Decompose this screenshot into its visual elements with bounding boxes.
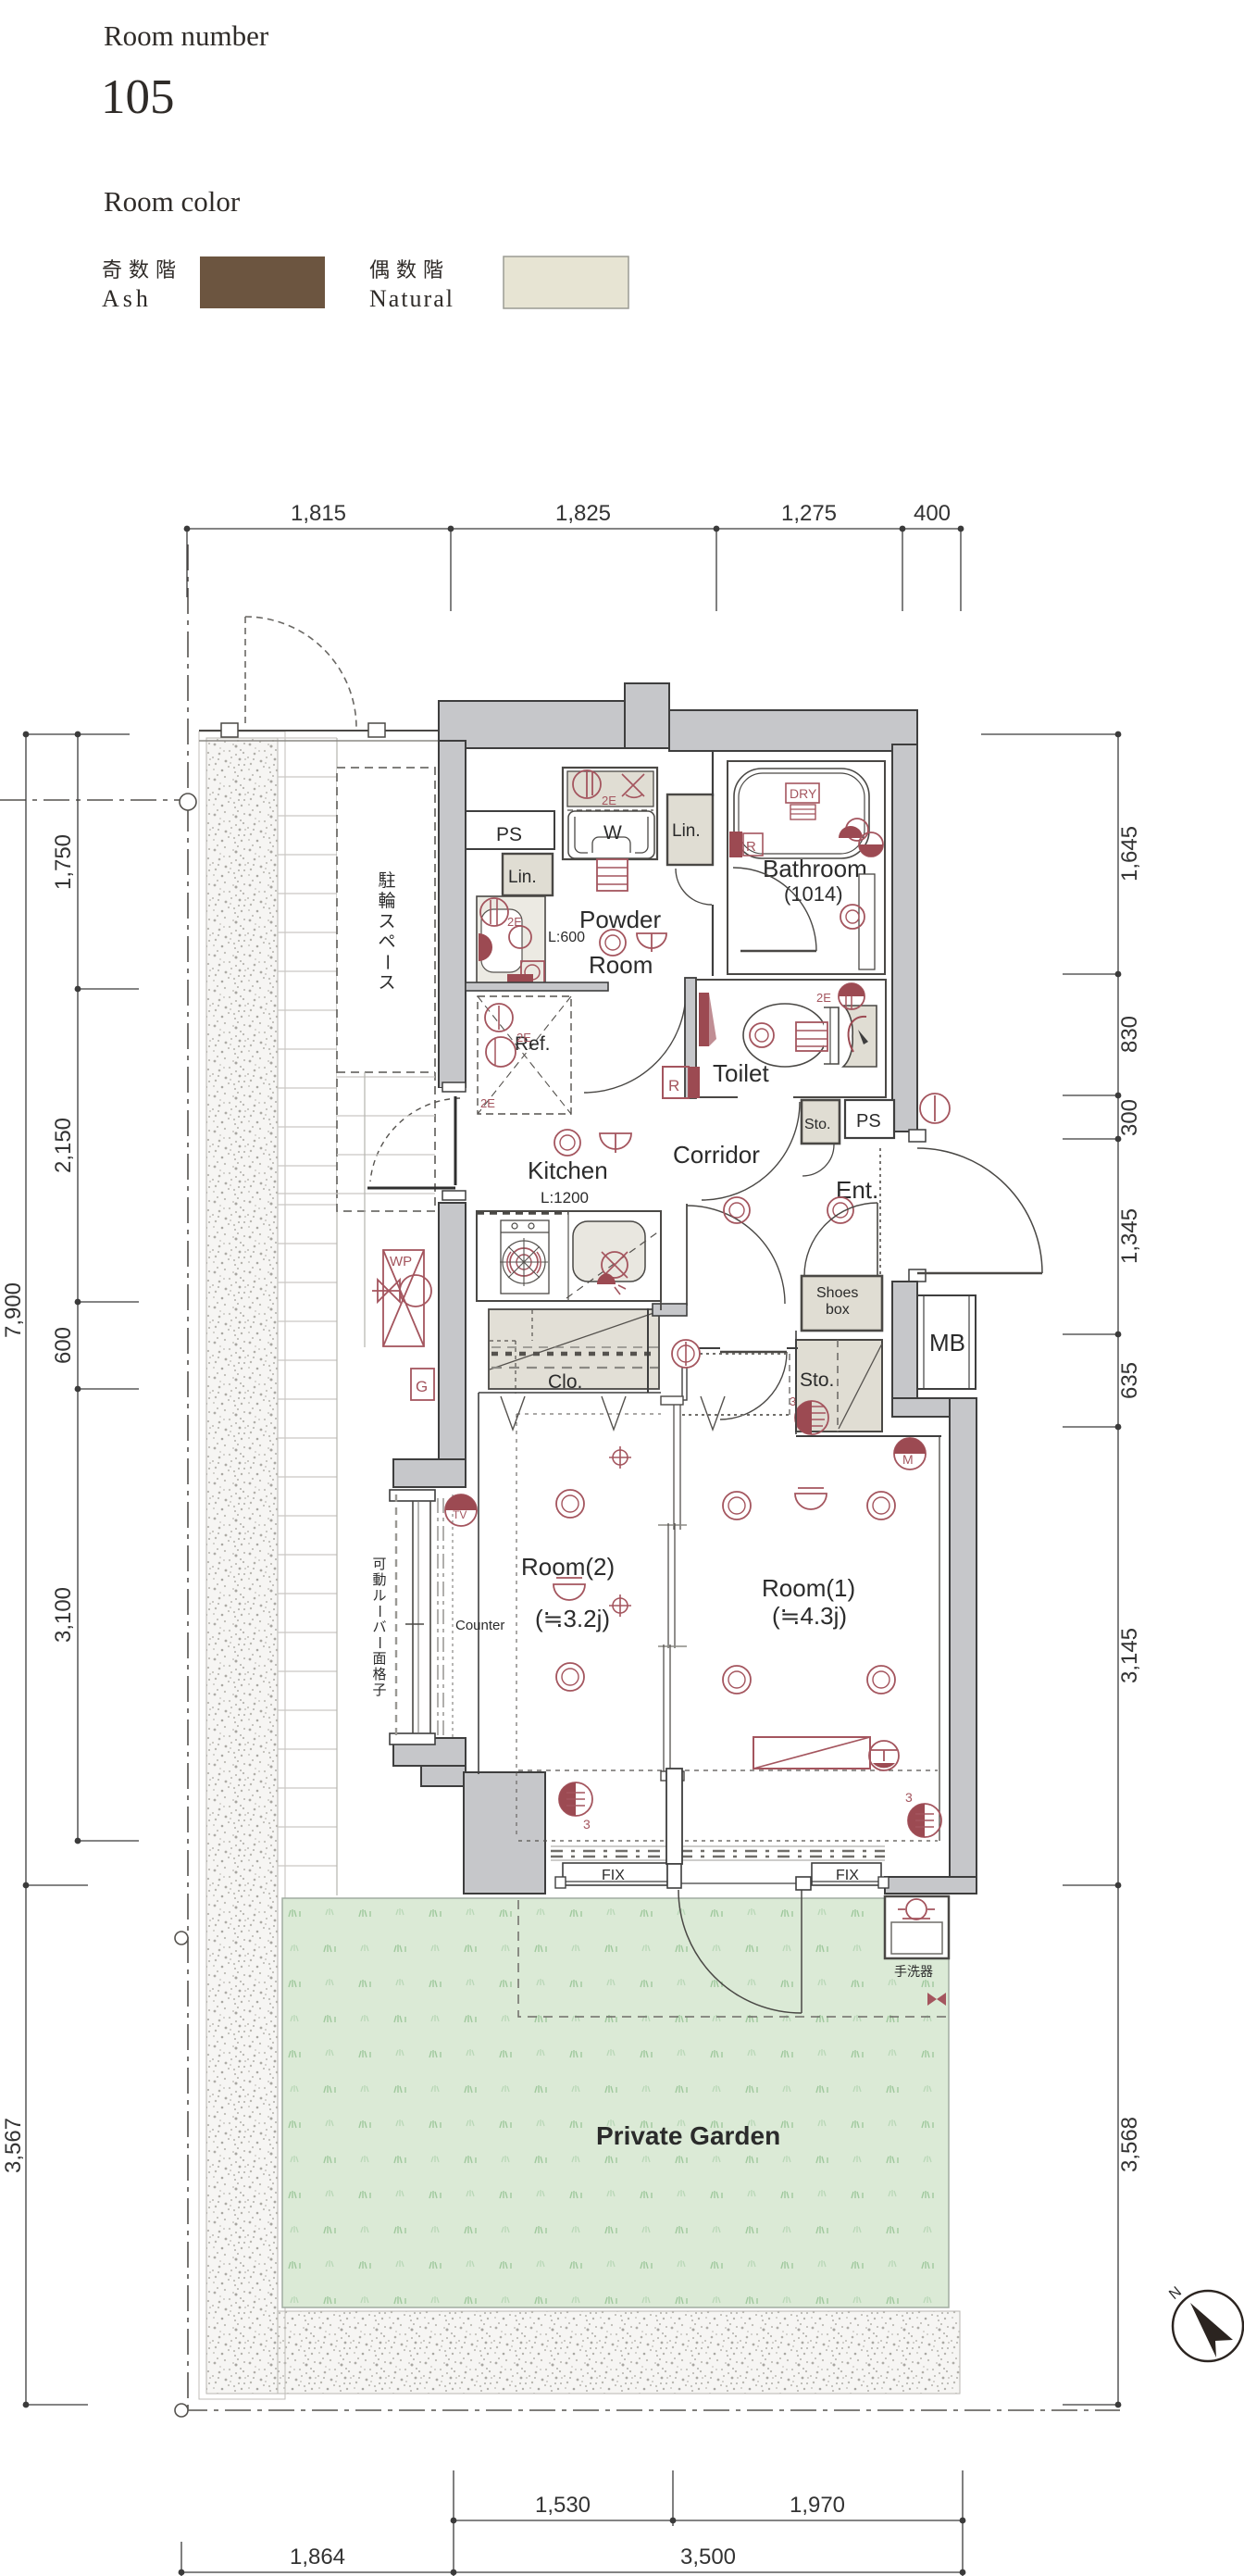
svg-text:子: 子 [372, 1682, 386, 1698]
svg-text:動: 動 [372, 1572, 386, 1588]
svg-text:G: G [416, 1378, 428, 1395]
svg-text:R: R [668, 1077, 679, 1094]
svg-text:面: 面 [372, 1651, 386, 1667]
svg-text:Room(1): Room(1) [762, 1574, 855, 1602]
svg-text:3,100: 3,100 [51, 1587, 76, 1643]
svg-text:Lin.: Lin. [672, 821, 701, 841]
svg-text:Ash: Ash [102, 285, 152, 312]
svg-text:Room color: Room color [104, 185, 241, 218]
svg-text:R: R [746, 839, 756, 855]
svg-text:300: 300 [1117, 1099, 1142, 1136]
svg-text:Powder: Powder [579, 906, 661, 933]
svg-text:ス: ス [378, 973, 395, 993]
svg-text:3,145: 3,145 [1117, 1628, 1142, 1683]
svg-text:W: W [603, 822, 622, 844]
svg-text:ー: ー [371, 1635, 387, 1649]
svg-text:Bathroom: Bathroom [763, 855, 867, 882]
svg-text:2E: 2E [507, 915, 522, 929]
svg-text:box: box [826, 1302, 850, 1318]
svg-text:400: 400 [914, 501, 951, 526]
svg-text:Counter: Counter [455, 1618, 504, 1633]
svg-text:Clo.: Clo. [548, 1371, 582, 1393]
svg-text:Private Garden: Private Garden [596, 2121, 780, 2150]
svg-text:(≒3.2j): (≒3.2j) [535, 1605, 610, 1632]
svg-text:1,970: 1,970 [790, 2493, 845, 2518]
svg-text:Corridor: Corridor [673, 1141, 760, 1169]
svg-text:635: 635 [1117, 1362, 1142, 1399]
svg-text:3: 3 [790, 1394, 796, 1408]
svg-text:ー: ー [371, 1604, 387, 1618]
svg-text:Room(2): Room(2) [521, 1553, 615, 1581]
svg-text:105: 105 [101, 70, 175, 124]
svg-text:2E: 2E [516, 1031, 531, 1044]
svg-text:駐: 駐 [378, 870, 395, 891]
svg-text:3: 3 [583, 1817, 591, 1832]
svg-text:2E: 2E [480, 1096, 495, 1110]
svg-text:Natural: Natural [369, 285, 454, 312]
svg-text:1,530: 1,530 [535, 2493, 591, 2518]
svg-text:可: 可 [372, 1557, 386, 1572]
svg-text:Room number: Room number [104, 19, 269, 52]
svg-text:DRY: DRY [790, 786, 817, 801]
svg-text:(1014): (1014) [784, 882, 843, 906]
svg-text:Toilet: Toilet [713, 1059, 769, 1087]
svg-text:Ent.: Ent. [836, 1176, 878, 1204]
svg-text:3,567: 3,567 [1, 2118, 26, 2173]
svg-text:600: 600 [51, 1327, 76, 1364]
svg-text:1,864: 1,864 [290, 2545, 345, 2570]
svg-text:PS: PS [496, 824, 522, 845]
svg-text:3: 3 [905, 1790, 913, 1805]
svg-text:1,750: 1,750 [51, 834, 76, 890]
svg-text:ペ: ペ [378, 932, 395, 952]
svg-text:奇数階: 奇数階 [102, 258, 182, 281]
svg-text:MB: MB [929, 1329, 965, 1357]
svg-text:バ: バ [372, 1619, 386, 1635]
svg-text:3,500: 3,500 [680, 2545, 736, 2570]
svg-text:2E: 2E [816, 991, 831, 1005]
svg-text:L:1200: L:1200 [541, 1189, 589, 1207]
svg-text:Kitchen: Kitchen [528, 1157, 608, 1184]
svg-text:2E: 2E [602, 794, 616, 807]
svg-text:Sto.: Sto. [804, 1117, 830, 1132]
svg-text:Lin.: Lin. [508, 868, 537, 887]
svg-text:M: M [902, 1452, 914, 1467]
svg-text:Sto.: Sto. [800, 1369, 834, 1391]
svg-text:格: 格 [372, 1667, 386, 1682]
svg-text:FIX: FIX [602, 1868, 625, 1883]
svg-text:輪: 輪 [378, 891, 395, 911]
svg-text:2,150: 2,150 [51, 1118, 76, 1173]
svg-text:ー: ー [377, 953, 396, 970]
svg-text:PS: PS [856, 1111, 881, 1132]
svg-text:830: 830 [1117, 1016, 1142, 1053]
svg-text:1,825: 1,825 [555, 501, 611, 526]
svg-text:1,815: 1,815 [291, 501, 346, 526]
svg-text:(≒4.3j): (≒4.3j) [772, 1602, 847, 1630]
svg-text:偶数階: 偶数階 [369, 258, 450, 281]
svg-text:ス: ス [378, 912, 395, 932]
svg-text:WP: WP [390, 1254, 412, 1269]
svg-text:ル: ル [372, 1588, 386, 1604]
svg-text:手洗器: 手洗器 [894, 1964, 933, 1979]
svg-text:3,568: 3,568 [1117, 2117, 1142, 2172]
svg-text:1,645: 1,645 [1117, 826, 1142, 882]
svg-text:1,275: 1,275 [781, 501, 837, 526]
svg-text:1,345: 1,345 [1117, 1208, 1142, 1264]
svg-text:Room: Room [589, 951, 653, 979]
svg-text:TV: TV [453, 1508, 466, 1521]
svg-text:7,900: 7,900 [1, 1282, 26, 1338]
svg-text:Shoes: Shoes [816, 1285, 858, 1301]
svg-text:FIX: FIX [836, 1868, 859, 1883]
